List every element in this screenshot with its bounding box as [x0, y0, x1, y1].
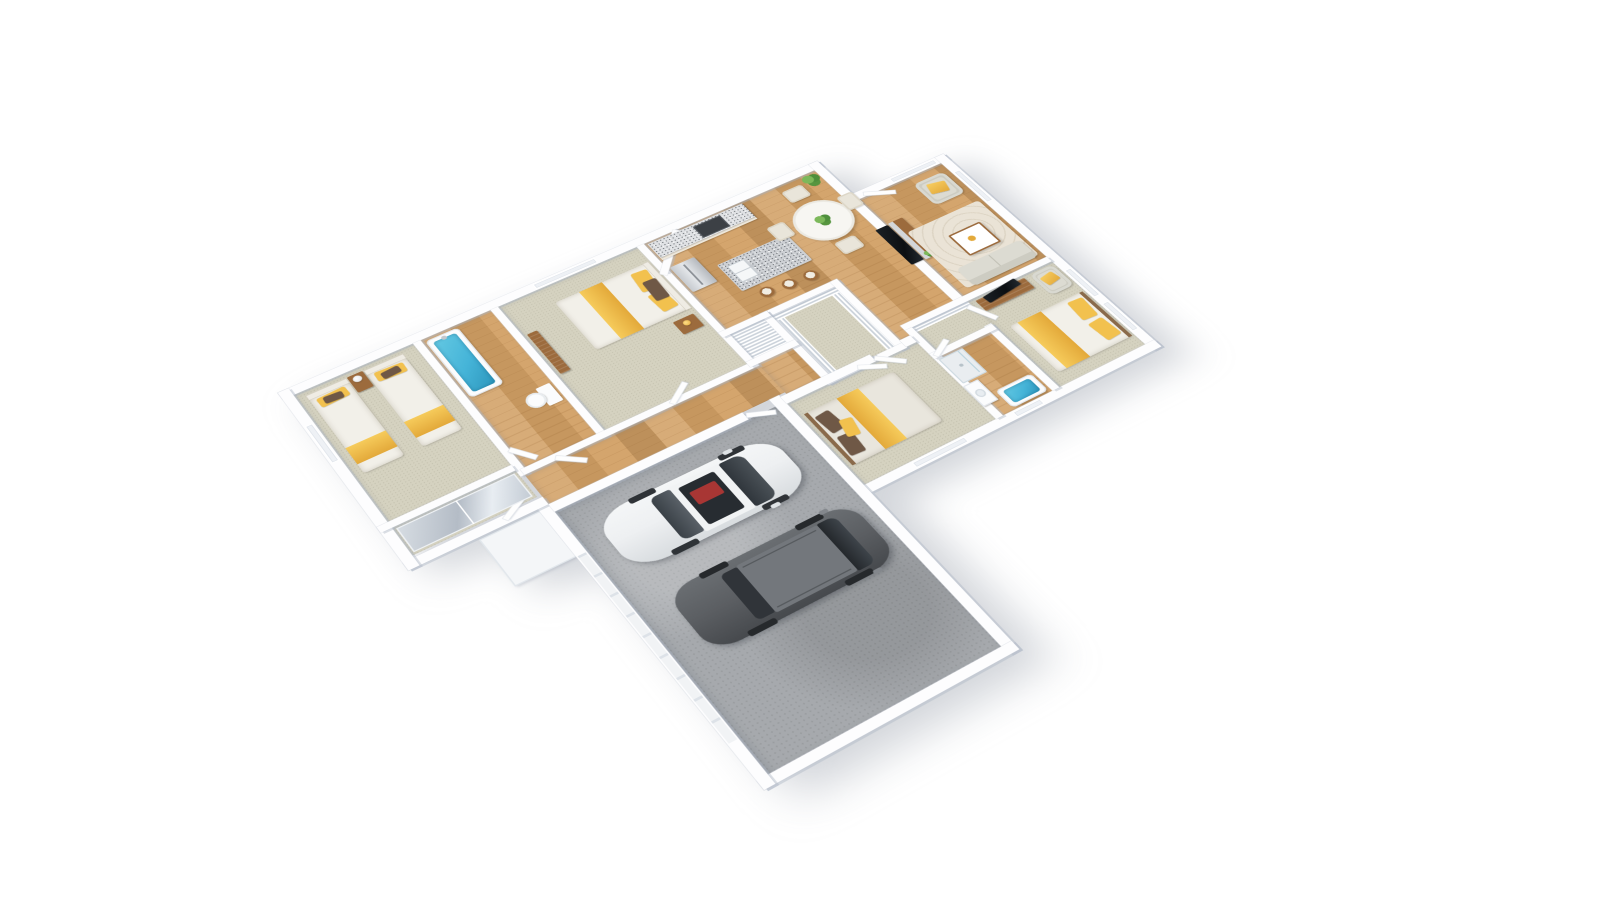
- floorplan: [242, 103, 1361, 899]
- sofa-cushion-divider: [988, 255, 1001, 266]
- floorplan-scene: [0, 0, 1600, 899]
- shower-drain: [958, 363, 964, 367]
